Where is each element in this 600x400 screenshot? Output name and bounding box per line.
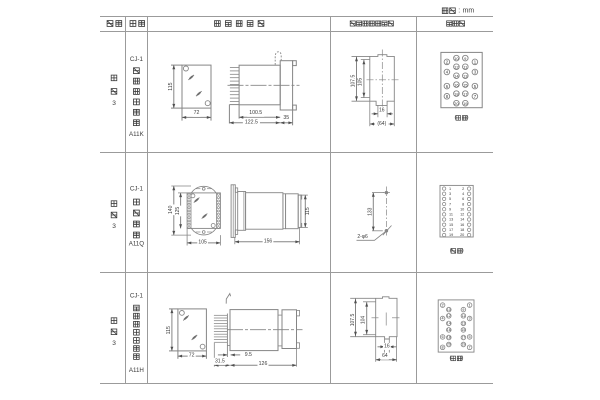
svg-text:2: 2	[462, 187, 464, 191]
svg-text:9: 9	[449, 207, 451, 211]
svg-text:13: 13	[461, 322, 465, 326]
svg-text:5: 5	[469, 335, 471, 339]
svg-text:12: 12	[460, 213, 464, 217]
svg-text:): )	[467, 115, 469, 121]
svg-text:A11H: A11H	[129, 367, 144, 374]
svg-text:3: 3	[112, 223, 116, 230]
svg-text:2-φ6: 2-φ6	[357, 234, 368, 240]
svg-text:mm: mm	[463, 8, 475, 15]
svg-text:72: 72	[194, 110, 200, 116]
svg-text:16: 16	[379, 107, 385, 113]
svg-text:): )	[462, 248, 464, 254]
svg-text:100.5: 100.5	[249, 110, 262, 116]
svg-text:14: 14	[454, 73, 459, 78]
svg-text:1: 1	[469, 303, 471, 307]
svg-text:16: 16	[384, 343, 390, 349]
svg-text:14: 14	[447, 322, 451, 326]
svg-text:20: 20	[447, 343, 451, 347]
svg-text:A11Q: A11Q	[129, 241, 145, 248]
svg-text:14: 14	[460, 218, 464, 222]
svg-text:2: 2	[442, 303, 444, 307]
svg-text:(64): (64)	[377, 121, 386, 127]
svg-text:107.5: 107.5	[351, 75, 357, 88]
svg-text:20: 20	[454, 101, 459, 106]
svg-text:6: 6	[442, 335, 444, 339]
svg-text:64: 64	[382, 353, 388, 359]
svg-text:15: 15	[461, 328, 465, 332]
svg-text:11: 11	[462, 314, 466, 318]
svg-text:18: 18	[447, 336, 451, 340]
svg-text:12: 12	[447, 314, 451, 318]
svg-text:3: 3	[112, 100, 116, 107]
svg-text:8: 8	[442, 346, 444, 350]
svg-text:17: 17	[449, 228, 453, 232]
svg-text:140: 140	[168, 205, 174, 214]
svg-text:6: 6	[462, 197, 464, 201]
svg-text:16: 16	[447, 328, 451, 332]
svg-text:13: 13	[463, 73, 468, 78]
svg-text:17: 17	[461, 336, 465, 340]
svg-text:35: 35	[283, 115, 289, 121]
svg-text:7: 7	[469, 346, 471, 350]
svg-text:4: 4	[462, 192, 464, 196]
svg-text:18: 18	[454, 91, 459, 96]
svg-text:9.5: 9.5	[245, 352, 252, 358]
svg-text:CJ-1: CJ-1	[130, 186, 144, 193]
svg-text:126: 126	[259, 361, 268, 367]
svg-text:13: 13	[449, 218, 453, 222]
svg-text:17: 17	[463, 91, 468, 96]
svg-text:72: 72	[189, 352, 195, 358]
svg-text:10: 10	[454, 56, 459, 61]
svg-text:9: 9	[462, 308, 464, 312]
svg-text:7: 7	[449, 202, 451, 206]
svg-text:3: 3	[469, 317, 471, 321]
svg-text:19: 19	[461, 343, 465, 347]
svg-text:18: 18	[460, 228, 464, 232]
svg-text:11: 11	[449, 213, 453, 217]
svg-text:31.5: 31.5	[215, 358, 225, 364]
svg-text:3: 3	[449, 192, 451, 196]
svg-text:12: 12	[454, 64, 459, 69]
svg-text:CJ-1: CJ-1	[130, 293, 144, 300]
svg-text:CJ-1: CJ-1	[130, 56, 144, 63]
svg-text:19: 19	[463, 101, 468, 106]
svg-text:105: 105	[198, 240, 207, 246]
svg-text:122.5: 122.5	[245, 120, 258, 126]
svg-text:115: 115	[166, 326, 172, 334]
svg-text:156: 156	[264, 239, 273, 245]
svg-text:107.5: 107.5	[350, 314, 356, 327]
svg-text:16: 16	[454, 82, 459, 87]
svg-text::: :	[458, 8, 460, 15]
svg-text:1: 1	[449, 187, 451, 191]
svg-text:15: 15	[449, 223, 453, 227]
svg-text:104: 104	[361, 316, 367, 325]
svg-text:15: 15	[463, 82, 468, 87]
svg-text:4: 4	[442, 317, 444, 321]
svg-text:20: 20	[460, 233, 464, 237]
svg-text:5: 5	[449, 197, 451, 201]
svg-text:115: 115	[168, 82, 174, 90]
svg-text:A11K: A11K	[129, 131, 145, 138]
svg-text:19: 19	[449, 233, 453, 237]
svg-text:133: 133	[368, 207, 374, 216]
svg-text:105: 105	[357, 78, 363, 87]
svg-text:3: 3	[112, 340, 116, 347]
svg-text:10: 10	[447, 308, 451, 312]
svg-text:10: 10	[460, 207, 464, 211]
svg-text:): )	[462, 355, 464, 361]
svg-text:115: 115	[305, 207, 311, 215]
svg-text:16: 16	[460, 223, 464, 227]
svg-text:125: 125	[175, 207, 181, 216]
svg-text:8: 8	[462, 202, 464, 206]
